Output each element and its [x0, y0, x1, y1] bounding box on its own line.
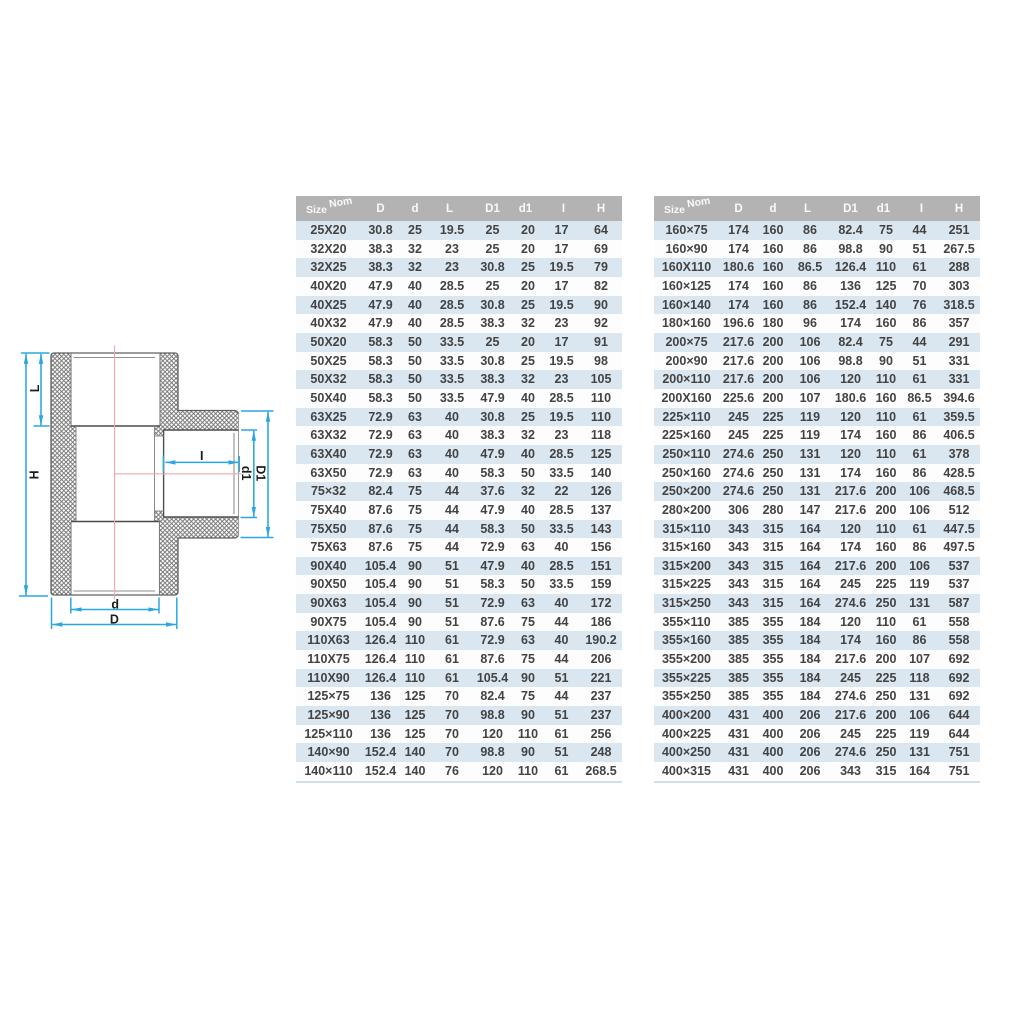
svg-text:D1: D1 [254, 465, 268, 481]
svg-text:I: I [200, 449, 203, 463]
svg-text:d1: d1 [239, 466, 253, 481]
svg-text:H: H [27, 470, 41, 479]
svg-text:L: L [28, 384, 42, 392]
svg-text:D: D [110, 612, 119, 626]
svg-text:d: d [111, 597, 119, 611]
